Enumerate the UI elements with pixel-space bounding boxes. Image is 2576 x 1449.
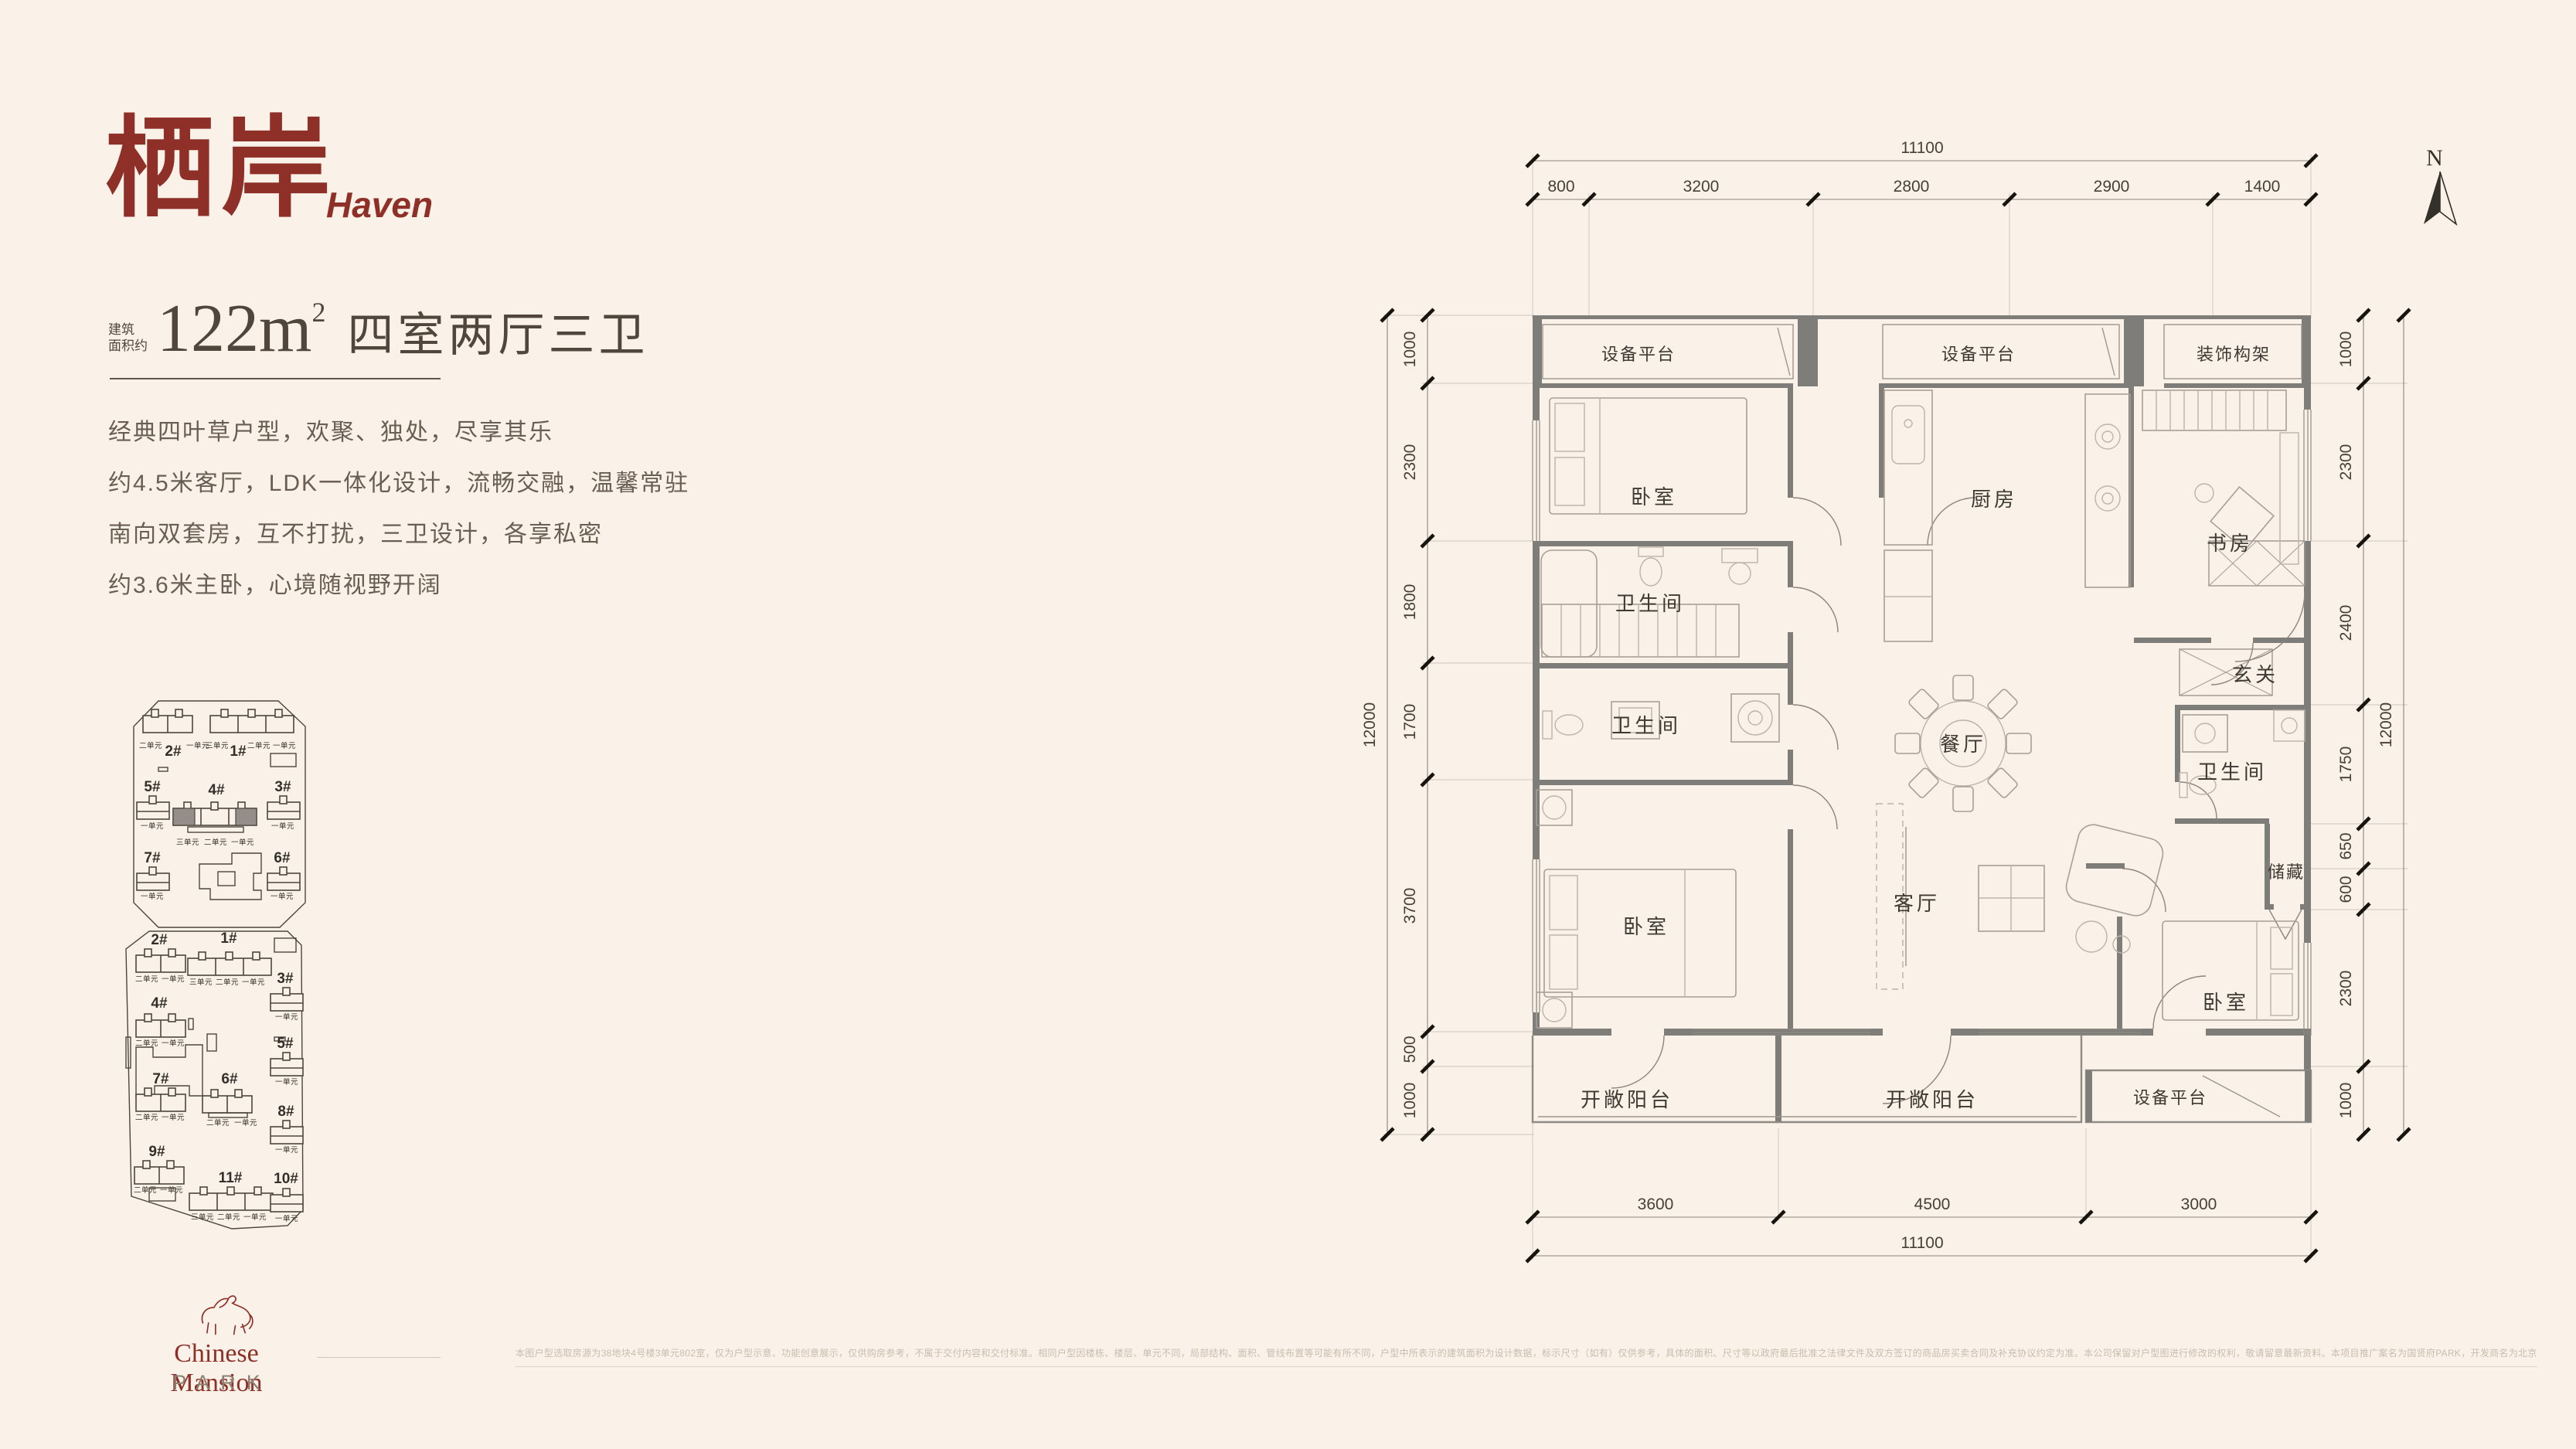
siteplan2-building-1: 1# 三单元 二单元 一单元 [188,930,271,987]
svg-text:2#: 2# [151,932,168,948]
svg-text:12000: 12000 [2377,702,2395,747]
svg-text:一单元: 一单元 [234,1118,257,1128]
dim-top: 11100 800 3200 2800 2900 1400 [1526,139,2317,206]
svg-text:一单元: 一单元 [141,821,164,831]
svg-text:7#: 7# [152,1071,169,1087]
doors [1611,498,2305,1104]
logo-subtitle: PARK [126,1371,307,1395]
room-label-dining: 餐厅 [1940,733,1986,756]
svg-text:一单元: 一单元 [162,975,185,984]
dim-right: 1000 2300 2400 1750 650 600 2300 1000 12… [2337,309,2410,1141]
description-line: 南向双套房，互不打扰，三卫设计，各享私密 [108,515,689,566]
description-line: 约4.5米客厅，LDK一体化设计，流畅交融，温馨常驻 [108,464,689,515]
divider-line [110,378,441,379]
disclaimer-text: 本图户型选取房源为38地块4号楼3单元802室，仅为户型示意、功能创意展示，仅供… [516,1346,2537,1367]
svg-text:1#: 1# [230,743,247,760]
room-label-equip-tl: 设备平台 [1601,345,1676,364]
siteplan1-building-6: 6# 一单元 [267,850,300,901]
svg-text:6#: 6# [221,1071,238,1087]
site-amenity [199,853,261,900]
room-label-balcony-left: 开敞阳台 [1581,1088,1673,1111]
svg-text:一单元: 一单元 [271,892,294,901]
area-spec: 建筑 面积约 122m2 四室两厅三卫 [108,295,648,363]
svg-text:2400: 2400 [2337,605,2355,641]
svg-text:600: 600 [2337,876,2355,903]
svg-text:1700: 1700 [1401,704,1419,740]
room-label-study: 书房 [2207,532,2253,555]
svg-text:1400: 1400 [2244,178,2281,196]
room-label-bedroom-br: 卧室 [2203,991,2249,1014]
svg-text:二单元: 二单元 [135,1039,158,1048]
svg-text:2900: 2900 [2094,178,2130,196]
site-structure [158,767,168,771]
site-plan-upper: 2# 二单元 一单元 1# 三单元 二单元 一单元 5# 一单元 4# 三单元 … [116,688,325,943]
siteplan2-building-7: 7# 二单元 一单元 [135,1071,185,1122]
room-label-foyer: 玄关 [2232,663,2278,686]
siteplan2-building-11: 11# 三单元 二单元 一单元 [189,1170,273,1222]
north-arrow-icon: N [2424,145,2456,224]
site-structure [271,753,296,767]
siteplan1-building-1: 1# 三单元 二单元 一单元 [206,709,296,760]
svg-text:5#: 5# [144,779,161,795]
svg-text:1#: 1# [220,930,237,947]
svg-text:800: 800 [1547,178,1574,196]
room-label-balcony-mid: 开敞阳台 [1886,1088,1979,1111]
room-label-bedroom-tl: 卧室 [1631,485,1677,509]
svg-text:二单元: 二单元 [139,741,162,750]
siteplan1-building-3: 3# 一单元 [267,779,300,831]
siteplan2-building-8: 8# 一单元 [271,1104,303,1155]
svg-text:二单元: 二单元 [247,741,271,750]
svg-text:5#: 5# [277,1036,294,1052]
siteplan2-building-4: 4# 二单元 一单元 [135,995,193,1048]
siteplan2-building-6: 6# 二单元 一单元 [202,1071,257,1128]
svg-text:一单元: 一单元 [243,1213,267,1222]
svg-text:11100: 11100 [1901,1234,1943,1252]
description-list: 经典四叶草户型，欢聚、独处，尽享其乐 约4.5米客厅，LDK一体化设计，流畅交融… [108,413,689,617]
svg-text:1800: 1800 [1401,584,1419,621]
svg-text:一单元: 一单元 [275,1077,298,1087]
svg-text:3#: 3# [277,971,294,987]
room-label-equip-mid: 设备平台 [1941,345,2016,364]
svg-text:1000: 1000 [1401,1083,1419,1119]
brochure-page: 栖岸 Haven 建筑 面积约 122m2 四室两厅三卫 经典四叶草户型，欢聚、… [0,0,2576,1449]
svg-text:3#: 3# [274,779,291,795]
logo-horse-icon [185,1289,260,1338]
svg-text:1750: 1750 [2337,747,2355,783]
siteplan2-building-3: 3# 一单元 [271,971,303,1022]
svg-text:一单元: 一单元 [141,892,164,901]
svg-text:3200: 3200 [1683,178,1720,196]
room-label-bath2: 卫生间 [1611,714,1681,737]
svg-text:2300: 2300 [2337,444,2355,481]
svg-text:一单元: 一单元 [273,741,296,750]
svg-text:1000: 1000 [2337,1083,2355,1119]
svg-text:1000: 1000 [1401,332,1419,368]
siteplan2-building-5: 5# 一单元 [271,1036,303,1087]
svg-text:2800: 2800 [1894,178,1930,196]
svg-text:4#: 4# [151,995,168,1012]
room-label-bath1: 卫生间 [1615,592,1685,615]
svg-text:三单元: 三单元 [176,838,199,847]
svg-text:二单元: 二单元 [206,1118,230,1128]
room-label-storage: 储藏 [2268,862,2305,882]
room-label-bedroom-bl: 卧室 [1623,915,1669,938]
svg-text:一单元: 一单元 [275,1145,298,1155]
svg-text:一单元: 一单元 [275,1214,298,1223]
description-line: 经典四叶草户型，欢聚、独处，尽享其乐 [108,413,689,464]
svg-text:7#: 7# [144,850,161,866]
room-label-bath3: 卫生间 [2197,760,2267,784]
siteplan2-building-10: 10# 一单元 [271,1171,303,1223]
svg-text:2#: 2# [165,743,182,760]
svg-text:一单元: 一单元 [160,1185,183,1195]
svg-text:一单元: 一单元 [271,821,294,831]
svg-text:2300: 2300 [2337,971,2355,1007]
floor-plan: N [1314,116,2566,1275]
page-title: 栖岸 [105,114,337,224]
site-plan-lower: 2# 二单元 一单元 1# 三单元 二单元 一单元 3# 一单元 4# 二单元 … [116,923,325,1240]
description-line: 约3.6米主卧，心境随视野开阔 [108,566,689,617]
logo-divider [317,1357,441,1358]
svg-text:1000: 1000 [2337,332,2355,368]
svg-text:N: N [2426,145,2443,171]
svg-text:12000: 12000 [1361,702,1379,747]
svg-text:一单元: 一单元 [162,1113,185,1122]
svg-text:500: 500 [1401,1036,1419,1063]
svg-text:二单元: 二单元 [135,975,158,984]
svg-text:8#: 8# [277,1104,294,1120]
svg-text:650: 650 [2337,832,2355,859]
site-structure [207,1034,216,1051]
svg-text:3600: 3600 [1638,1196,1674,1213]
siteplan1-building-5: 5# 一单元 [137,779,169,831]
svg-text:一单元: 一单元 [231,838,254,847]
page-title-en: Haven [326,187,433,223]
siteplan2-building-2: 2# 二单元 一单元 [135,932,185,984]
svg-text:6#: 6# [274,850,291,866]
svg-text:二单元: 二单元 [216,978,239,987]
svg-text:三单元: 三单元 [191,1213,214,1222]
room-label-living: 客厅 [1894,892,1940,915]
room-count: 四室两厅三卫 [347,312,648,359]
svg-text:一单元: 一单元 [242,978,265,987]
svg-text:二单元: 二单元 [217,1213,240,1222]
svg-text:4500: 4500 [1914,1196,1951,1213]
svg-text:三单元: 三单元 [206,741,229,750]
svg-text:三单元: 三单元 [189,978,213,987]
siteplan1-building-4: 4# 三单元 二单元 一单元 [173,782,257,847]
svg-text:3700: 3700 [1401,888,1419,924]
siteplan1-building-2: 2# 二单元 一单元 [139,709,209,760]
area-prefix: 建筑 面积约 [108,321,148,363]
svg-text:11100: 11100 [1901,139,1943,157]
svg-text:2300: 2300 [1401,444,1419,481]
svg-text:10#: 10# [274,1171,298,1187]
dim-left: 12000 1000 2300 1800 1700 3700 500 1000 [1361,309,1434,1141]
room-label-kitchen: 厨房 [1971,488,2017,511]
svg-text:二单元: 二单元 [134,1185,157,1195]
svg-text:3000: 3000 [2181,1196,2217,1213]
area-value: 122m2 [157,295,325,363]
svg-text:一单元: 一单元 [275,1012,298,1022]
svg-text:二单元: 二单元 [135,1113,158,1122]
svg-text:9#: 9# [148,1144,165,1160]
svg-text:11#: 11# [219,1170,243,1186]
siteplan2-building-9: 9# 二单元 一单元 [134,1144,184,1195]
room-label-deco: 装饰构架 [2197,345,2271,364]
siteplan1-building-7: 7# 一单元 [137,850,169,901]
dim-bottom: 3600 4500 3000 11100 [1526,1196,2317,1262]
room-label-equip-bottom: 设备平台 [2133,1088,2207,1107]
svg-text:二单元: 二单元 [204,838,227,847]
site-structure [274,938,296,952]
svg-text:一单元: 一单元 [162,1039,185,1048]
svg-text:4#: 4# [208,782,225,798]
